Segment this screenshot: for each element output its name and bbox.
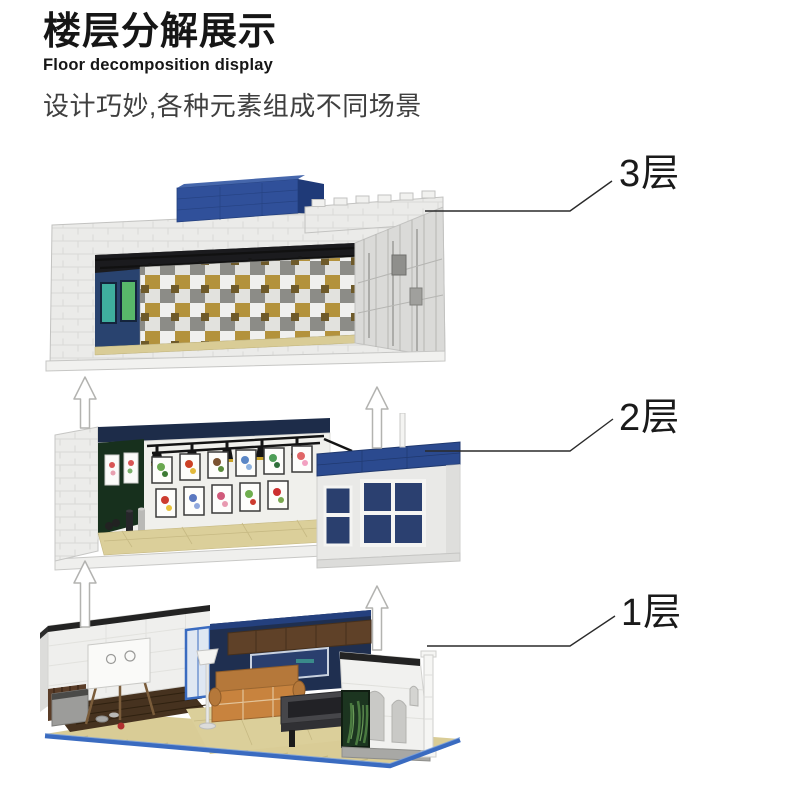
floor-3-label: 3层 <box>619 155 680 193</box>
tagline: 设计巧妙,各种元素组成不同场景 <box>43 86 422 123</box>
floor-1-label: 1层 <box>621 594 682 632</box>
right-annex <box>317 442 460 568</box>
right-facade <box>340 651 436 761</box>
floor-2-model <box>52 413 464 573</box>
floor-2-left-wall <box>55 427 98 561</box>
gallery-interior <box>95 243 355 355</box>
green-gallery-wall <box>98 439 144 535</box>
floor-2-label: 2层 <box>619 399 680 437</box>
page-title-en: Floor decomposition display <box>43 56 422 75</box>
page-root: 楼层分解展示 Floor decomposition display 设计巧妙,… <box>0 0 800 800</box>
floor-1-model <box>36 593 466 770</box>
arch <box>410 686 418 706</box>
page-title: 楼层分解展示 <box>43 12 422 54</box>
leader-line-floor-3 <box>425 181 612 211</box>
header: 楼层分解展示 Floor decomposition display 设计巧妙,… <box>43 12 422 123</box>
arch <box>392 700 406 743</box>
artwork <box>121 281 136 321</box>
floor-3-model <box>40 163 450 390</box>
mosaic-feature-wall <box>140 257 355 345</box>
artwork <box>101 283 116 323</box>
white-pole <box>400 413 405 447</box>
